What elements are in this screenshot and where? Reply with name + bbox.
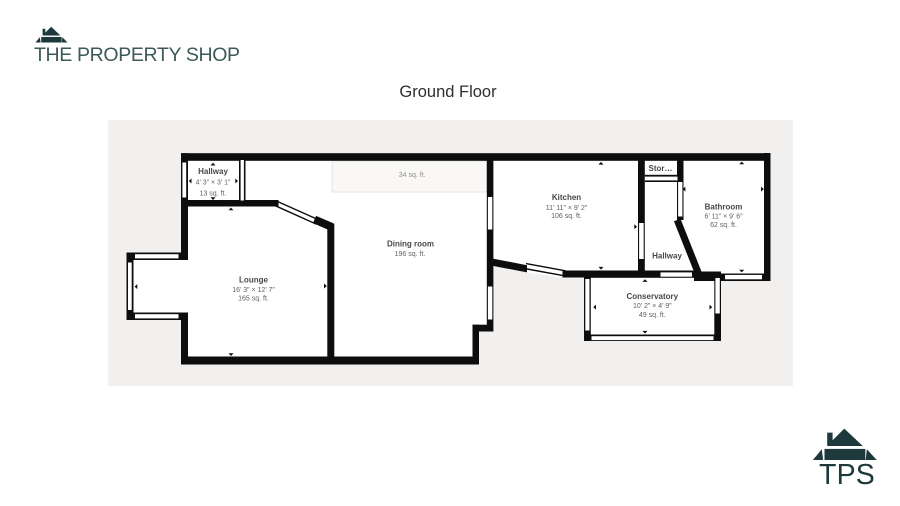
svg-text:Hallway: Hallway (198, 167, 228, 176)
svg-text:196 sq. ft.: 196 sq. ft. (395, 251, 426, 258)
svg-text:4’ 3” × 3’ 1”: 4’ 3” × 3’ 1” (196, 180, 231, 187)
svg-text:34 sq. ft.: 34 sq. ft. (399, 172, 426, 179)
svg-text:49 sq. ft.: 49 sq. ft. (639, 312, 666, 319)
svg-text:Lounge: Lounge (239, 276, 268, 285)
svg-text:10’ 2” × 4’ 9”: 10’ 2” × 4’ 9” (633, 303, 672, 310)
svg-text:11’ 11” × 9’ 2”: 11’ 11” × 9’ 2” (546, 205, 588, 212)
svg-text:Hallway: Hallway (652, 252, 682, 261)
svg-text:13 sq. ft.: 13 sq. ft. (200, 191, 227, 198)
svg-text:6’ 11” × 9’ 6”: 6’ 11” × 9’ 6” (704, 214, 743, 221)
svg-text:Kitchen: Kitchen (552, 193, 581, 202)
svg-text:62 sq. ft.: 62 sq. ft. (710, 222, 737, 229)
svg-text:16’ 3” × 12’ 7”: 16’ 3” × 12’ 7” (232, 287, 275, 294)
svg-text:Bathroom: Bathroom (705, 203, 743, 212)
svg-text:Conservatory: Conservatory (627, 292, 679, 301)
svg-text:165 sq. ft.: 165 sq. ft. (238, 295, 269, 302)
svg-text:106 sq. ft.: 106 sq. ft. (551, 213, 582, 220)
svg-text:Dining room: Dining room (387, 240, 434, 249)
svg-text:Stor…: Stor… (649, 164, 673, 173)
